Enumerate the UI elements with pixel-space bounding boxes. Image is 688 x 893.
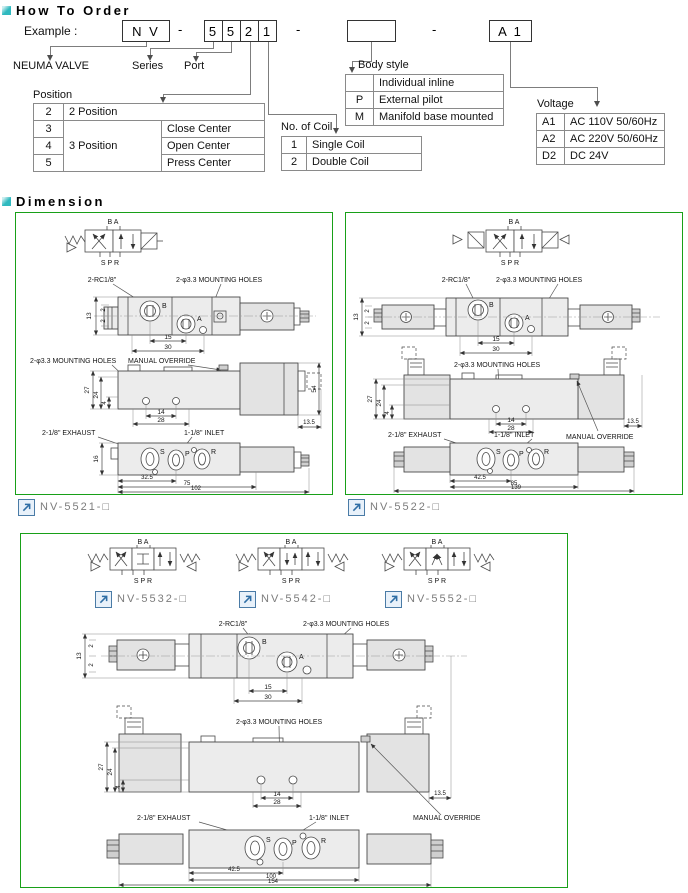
position-label: Press Center	[162, 155, 265, 172]
dim-2: 2	[365, 309, 371, 313]
code-box-digit-2: 5	[222, 20, 241, 42]
port-label: Port	[184, 60, 204, 72]
port-s-label: S	[160, 449, 165, 456]
body-style-code: M	[346, 109, 374, 126]
table-row: 3 3 Position Close Center	[34, 121, 265, 138]
dim-13: 13	[86, 312, 93, 320]
dim-24: 24	[93, 391, 100, 399]
dimension-panel-nv5521: B A S P R 2-RC1/8" 2-φ3.3 MOUNTING HOLES	[15, 212, 333, 495]
dim-24: 24	[107, 768, 114, 776]
code-dash: -	[432, 22, 436, 37]
table-row: 2 Double Coil	[282, 154, 422, 171]
connector-line	[268, 114, 337, 115]
voltage-label: AC 220V 50/60Hz	[565, 131, 665, 148]
port-b-label: B	[162, 303, 167, 310]
exhaust-label: 2-1/8" EXHAUST	[137, 815, 191, 822]
port-a-label: A	[197, 316, 202, 323]
link-icon[interactable]	[239, 591, 256, 608]
position-table-title: Position	[33, 89, 72, 101]
body-style-code	[346, 75, 374, 92]
voltage-table: A1 AC 110V 50/60Hz A2 AC 220V 50/60Hz D2…	[536, 113, 665, 165]
table-row: M Manifold base mounted	[346, 109, 504, 126]
dim-139: 139	[511, 485, 522, 491]
body-style-label: External pilot	[374, 92, 504, 109]
dim-4: 4	[102, 401, 108, 405]
dim-27: 27	[367, 395, 374, 403]
page: How To Order Example : N V - 5 5 2 1 - -…	[0, 0, 688, 893]
code-box-digit-4: 1	[258, 20, 277, 42]
dim-24: 24	[376, 399, 383, 407]
link-icon[interactable]	[385, 591, 402, 608]
port-r-label: R	[321, 838, 326, 845]
dim-27: 27	[84, 386, 91, 394]
neuma-valve-label: NEUMA VALVE	[13, 60, 89, 72]
side-view: 2-φ3.3 MOUNTING HOLES 27 24	[98, 706, 481, 822]
mounting-holes-label: 2-φ3.3 MOUNTING HOLES	[236, 719, 323, 726]
voltage-label: DC 24V	[565, 148, 665, 165]
body-style-table-title: Body style	[358, 59, 409, 71]
model-caption-nv5522: NV-5522-□	[370, 501, 441, 513]
position-code: 2	[34, 104, 64, 121]
model-caption-nv5521: NV-5521-□	[40, 501, 111, 513]
port-p-label: P	[185, 451, 190, 458]
code-box-voltage: A 1	[489, 20, 532, 42]
port-p-label: P	[519, 451, 524, 458]
voltage-label: AC 110V 50/60Hz	[565, 114, 665, 131]
symbol-ports-top: B A	[286, 539, 297, 546]
how-to-order-title: How To Order	[16, 3, 131, 18]
bottom-view: 2-1/8" EXHAUST 1-1/8" INLET S P R 42.5	[388, 432, 634, 493]
position-label: Open Center	[162, 138, 265, 155]
table-row: 1 Single Coil	[282, 137, 422, 154]
connector-line	[250, 42, 251, 95]
code-box-blank	[347, 20, 396, 42]
inlet-label: 1-1/8" INLET	[494, 432, 535, 439]
symbol-ports-bottom: S P R	[134, 578, 152, 585]
table-row: A2 AC 220V 50/60Hz	[537, 131, 665, 148]
dim-14: 14	[157, 409, 165, 416]
coil-code: 1	[282, 137, 307, 154]
dim-42-5: 42.5	[474, 475, 486, 481]
port-a-label: A	[299, 654, 304, 661]
body-style-table: Individual inline P External pilot M Man…	[345, 74, 504, 126]
table-row: Individual inline	[346, 75, 504, 92]
section-bullet-icon	[2, 197, 11, 206]
port-s-label: S	[496, 449, 501, 456]
dim-15: 15	[164, 334, 172, 341]
position-label: 2 Position	[64, 104, 265, 121]
connector-line	[597, 88, 598, 102]
valve-symbol-open-center: B A S P R	[236, 539, 348, 585]
side-view: 2-φ3.3 MOUNTING HOLES 27 24	[367, 347, 642, 441]
coil-label: Single Coil	[307, 137, 422, 154]
dimension-panel-nv55x2: B A S P R B A S P R B A	[20, 533, 568, 888]
dim-13: 13	[76, 652, 83, 660]
port-b-label: B	[262, 639, 267, 646]
connector-line	[510, 42, 511, 88]
side-view: 2-φ3.3 MOUNTING HOLES MANUAL OVERRIDE 27…	[30, 358, 321, 429]
dim-13: 13	[353, 313, 360, 321]
dim-30: 30	[164, 344, 172, 351]
mounting-holes-label: 2-φ3.3 MOUNTING HOLES	[303, 621, 390, 628]
connector-line	[50, 46, 147, 47]
symbol-ports-top: B A	[138, 539, 149, 546]
dimension-title: Dimension	[16, 194, 105, 209]
dim-42-5: 42.5	[228, 867, 240, 873]
rc-label: 2-RC1/8"	[88, 277, 117, 284]
symbol-ports-bottom: S P R	[101, 260, 119, 267]
example-label: Example :	[24, 24, 77, 38]
body-style-label: Manifold base mounted	[374, 109, 504, 126]
code-box-digit-1: 5	[204, 20, 223, 42]
position-code: 5	[34, 155, 64, 172]
model-caption-nv5552: NV-5552-□	[407, 593, 478, 605]
symbol-ports-top: B A	[509, 219, 520, 226]
dim-32-5: 32.5	[141, 475, 153, 481]
voltage-code: D2	[537, 148, 565, 165]
dim-15: 15	[492, 336, 500, 343]
port-b-label: B	[489, 302, 494, 309]
code-box-digit-3: 2	[240, 20, 259, 42]
arrow-up-right-icon	[351, 502, 362, 513]
dimension-header: Dimension	[2, 194, 105, 209]
manual-override-label: MANUAL OVERRIDE	[128, 358, 196, 365]
top-view: 2-RC1/8" 2-φ3.3 MOUNTING HOLES B A	[353, 277, 660, 356]
manual-override-label: MANUAL OVERRIDE	[413, 815, 481, 822]
dimension-panel-nv5522: B A S P R 2-RC1/8" 2-φ3.3 MOUNTING HOLES	[345, 212, 683, 495]
dim-14: 14	[273, 791, 281, 798]
nv-55x2-drawing: B A S P R B A S P R B A	[21, 534, 567, 887]
position-group-label: 3 Position	[64, 121, 162, 172]
table-row: P External pilot	[346, 92, 504, 109]
symbol-ports-bottom: S P R	[282, 578, 300, 585]
dim-14: 14	[507, 417, 515, 424]
connector-line	[163, 94, 251, 95]
table-row: A1 AC 110V 50/60Hz	[537, 114, 665, 131]
connector-line	[336, 115, 337, 129]
dim-16: 16	[93, 455, 100, 463]
dim-2: 2	[89, 644, 95, 648]
arrow-down-icon	[594, 101, 600, 107]
voltage-table-title: Voltage	[537, 98, 574, 110]
connector-line	[268, 42, 269, 115]
model-caption-nv5532: NV-5532-□	[117, 593, 188, 605]
link-icon[interactable]	[348, 499, 365, 516]
position-code: 4	[34, 138, 64, 155]
nv-5522-drawing: B A S P R 2-RC1/8" 2-φ3.3 MOUNTING HOLES	[346, 213, 682, 494]
code-dash: -	[296, 22, 300, 37]
dim-30: 30	[264, 694, 272, 701]
dim-154: 154	[268, 879, 279, 885]
valve-symbol-press-center: B A S P R	[382, 539, 494, 585]
arrow-down-icon	[349, 67, 355, 73]
mounting-holes-label: 2-φ3.3 MOUNTING HOLES	[176, 277, 263, 284]
dim-75: 75	[184, 481, 191, 487]
connector-line	[196, 52, 232, 53]
mounting-holes-label: 2-φ3.3 MOUNTING HOLES	[30, 358, 117, 365]
dim-13-5: 13.5	[303, 420, 315, 426]
connector-line	[150, 48, 214, 49]
dim-2: 2	[89, 663, 95, 667]
body-style-code: P	[346, 92, 374, 109]
nv-5521-drawing: B A S P R 2-RC1/8" 2-φ3.3 MOUNTING HOLES	[16, 213, 332, 494]
arrow-up-right-icon	[388, 594, 399, 605]
dim-102: 102	[191, 486, 202, 492]
mounting-holes-label: 2-φ3.3 MOUNTING HOLES	[454, 362, 541, 369]
dim-13-5: 13.5	[434, 791, 446, 797]
arrow-up-right-icon	[21, 502, 32, 513]
symbol-ports-bottom: S P R	[501, 260, 519, 267]
how-to-order-header: How To Order	[2, 3, 131, 18]
rc-label: 2-RC1/8"	[442, 277, 471, 284]
position-table: 2 2 Position 3 3 Position Close Center 4…	[33, 103, 265, 172]
top-view: 2-RC1/8" 2-φ3.3 MOUNTING HOLES B A	[86, 277, 316, 354]
dim-13-5: 13.5	[627, 419, 639, 425]
dim-30: 30	[492, 346, 500, 353]
table-row: 2 2 Position	[34, 104, 265, 121]
port-r-label: R	[544, 449, 549, 456]
table-row: D2 DC 24V	[537, 148, 665, 165]
manual-override-label: MANUAL OVERRIDE	[566, 434, 634, 441]
dim-54: 54	[311, 385, 318, 393]
dim-15: 15	[264, 684, 272, 691]
position-code: 3	[34, 121, 64, 138]
port-s-label: S	[266, 837, 271, 844]
series-label: Series	[132, 60, 163, 72]
port-p-label: P	[292, 840, 297, 847]
dim-27: 27	[98, 763, 105, 771]
body-style-label: Individual inline	[374, 75, 504, 92]
dim-28: 28	[273, 799, 281, 806]
position-label: Close Center	[162, 121, 265, 138]
inlet-label: 1-1/8" INLET	[184, 430, 225, 437]
rc-label: 2-RC1/8"	[219, 621, 248, 628]
exhaust-label: 2-1/8" EXHAUST	[42, 430, 96, 437]
port-r-label: R	[211, 449, 216, 456]
valve-symbol: B A S P R	[65, 219, 163, 267]
arrow-up-right-icon	[242, 594, 253, 605]
dim-2: 2	[365, 321, 371, 325]
dim-28: 28	[507, 425, 515, 432]
mounting-holes-label: 2-φ3.3 MOUNTING HOLES	[496, 277, 583, 284]
exhaust-label: 2-1/8" EXHAUST	[388, 432, 442, 439]
bottom-view: 2-1/8" EXHAUST 1-1/8" INLET S P R 16	[42, 430, 309, 493]
code-box-prefix: N V	[122, 20, 170, 42]
symbol-ports-top: B A	[108, 219, 119, 226]
valve-symbol: B A S P R	[453, 219, 569, 267]
coil-table: 1 Single Coil 2 Double Coil	[281, 136, 422, 171]
model-caption-nv5542: NV-5542-□	[261, 593, 332, 605]
coil-table-title: No. of Coil	[281, 121, 332, 133]
dim-4: 4	[385, 411, 391, 415]
section-bullet-icon	[2, 6, 11, 15]
port-a-label: A	[525, 315, 530, 322]
connector-line	[510, 87, 598, 88]
voltage-code: A2	[537, 131, 565, 148]
bottom-view: 2-1/8" EXHAUST 1-1/8" INLET S P R 42.5	[107, 815, 443, 887]
dim-28: 28	[157, 417, 165, 424]
arrow-up-right-icon	[98, 594, 109, 605]
link-icon[interactable]	[18, 499, 35, 516]
symbol-ports-top: B A	[432, 539, 443, 546]
voltage-code: A1	[537, 114, 565, 131]
arrow-down-icon	[333, 128, 339, 134]
link-icon[interactable]	[95, 591, 112, 608]
symbol-ports-bottom: S P R	[428, 578, 446, 585]
inlet-label: 1-1/8" INLET	[309, 815, 350, 822]
code-dash: -	[178, 22, 182, 37]
coil-code: 2	[282, 154, 307, 171]
coil-label: Double Coil	[307, 154, 422, 171]
valve-symbol-close-center: B A S P R	[88, 539, 200, 585]
